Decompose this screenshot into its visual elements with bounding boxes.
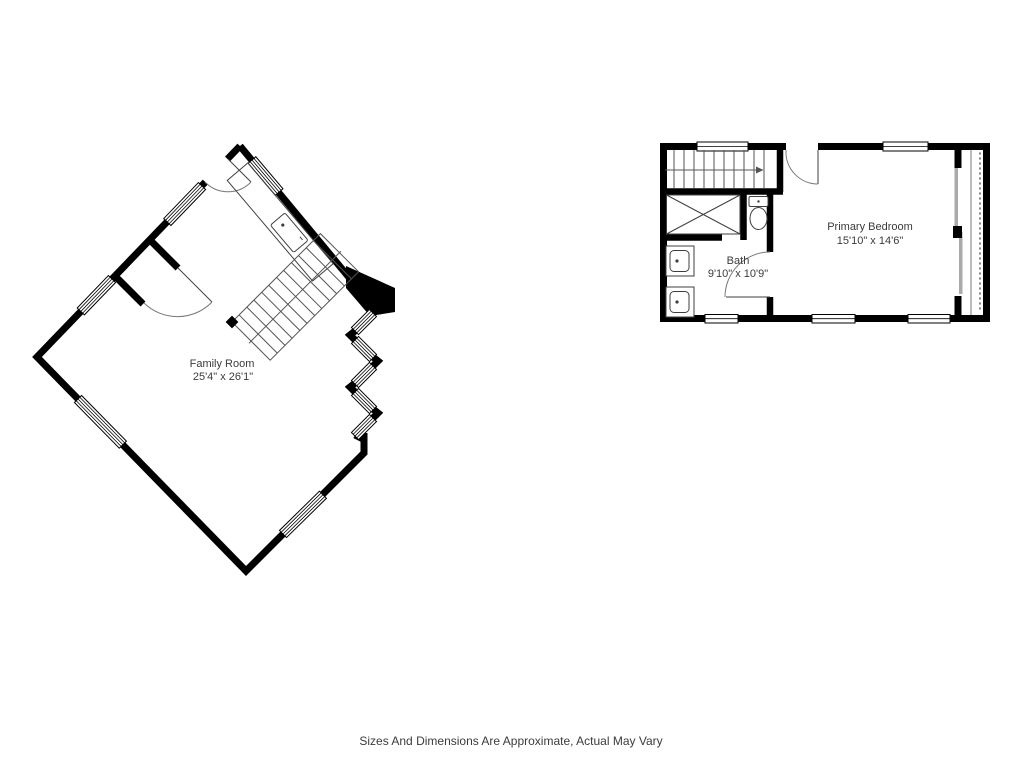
wall-block xyxy=(346,266,395,316)
floorplan-page: Family Room 25'4" x 26'1" Primary Bedroo… xyxy=(0,0,1024,768)
window xyxy=(883,142,928,151)
window xyxy=(74,395,126,448)
window xyxy=(351,388,376,413)
window xyxy=(351,362,376,387)
entry-door-opening xyxy=(205,159,227,182)
bedroom-door-opening xyxy=(786,141,818,152)
floorplan-drawing xyxy=(0,0,1024,768)
window xyxy=(164,183,206,226)
room-dimensions-bath: 9'10" x 10'9" xyxy=(708,268,768,281)
window xyxy=(351,336,376,361)
upper-exterior-walls xyxy=(664,147,987,319)
room-label-primary-bedroom: Primary Bedroom xyxy=(827,221,913,234)
window xyxy=(279,491,326,537)
window xyxy=(812,315,855,324)
window xyxy=(248,157,283,195)
window xyxy=(705,315,738,324)
room-dimensions-primary-bedroom: 15'10" x 14'6" xyxy=(837,235,903,248)
closet xyxy=(115,240,212,317)
upper-floor-plan xyxy=(660,141,987,323)
counter xyxy=(227,163,333,281)
room-dimensions-family-room: 25'4" x 26'1" xyxy=(193,371,253,384)
sliding-door-handle xyxy=(953,226,962,238)
window xyxy=(77,276,115,315)
toilet xyxy=(749,197,768,230)
family-room-windows xyxy=(74,157,376,538)
window xyxy=(351,309,376,334)
room-label-bath: Bath xyxy=(727,255,750,268)
window xyxy=(908,315,950,324)
room-label-family-room: Family Room xyxy=(190,358,255,371)
sliding-door-panel xyxy=(955,168,959,230)
closet-door xyxy=(144,268,212,317)
window xyxy=(697,142,748,151)
sliding-door-panel xyxy=(959,232,963,294)
disclaimer-text: Sizes And Dimensions Are Approximate, Ac… xyxy=(359,734,662,748)
